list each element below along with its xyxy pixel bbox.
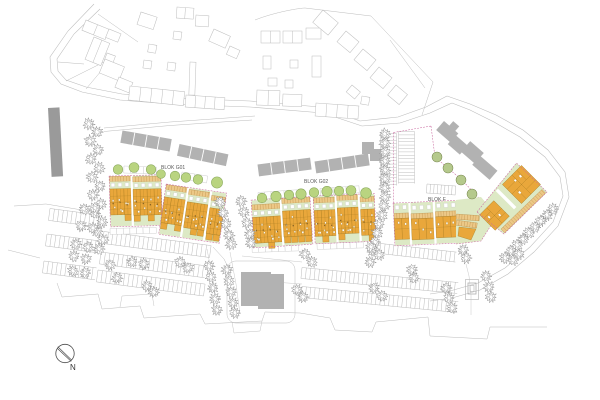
svg-text:BLOK G01: BLOK G01 (161, 165, 185, 171)
svg-text:BLOK G02: BLOK G02 (304, 179, 328, 185)
svg-text:N: N (70, 363, 76, 372)
svg-text:BLOK F: BLOK F (428, 197, 446, 203)
